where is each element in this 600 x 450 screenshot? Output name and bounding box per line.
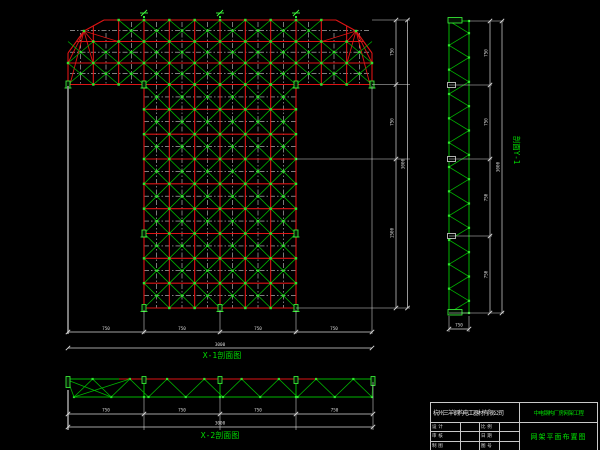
side-height-dim: 750 bbox=[484, 270, 490, 278]
row-label: 图 号 bbox=[480, 442, 500, 450]
bottom-dim: 750 bbox=[178, 408, 186, 414]
plan-right-dim: 750 bbox=[390, 48, 396, 56]
row-label: 制 图 bbox=[431, 442, 461, 450]
plan-caption: X-1剖面图 bbox=[203, 350, 241, 360]
table-row: 设 计 比 例 bbox=[431, 423, 519, 432]
table-row: 制 图 图 号 bbox=[431, 442, 519, 450]
row-label: 比 例 bbox=[480, 423, 500, 431]
side-height-dim: 750 bbox=[484, 118, 490, 126]
plan-right-dim: 1500 bbox=[390, 227, 396, 238]
title-block-table: 设 计 比 例 审 核 日 期 制 图 图 号 bbox=[431, 423, 519, 450]
plan-bottom-dim: 750 bbox=[330, 326, 338, 332]
drawing-title: 网架平面布置图 bbox=[520, 423, 597, 450]
drawing-svg: 7507507507503000750750150030007507507507… bbox=[0, 0, 600, 450]
row-value bbox=[461, 432, 480, 440]
row-label: 审 核 bbox=[431, 432, 461, 440]
row-label: 设 计 bbox=[431, 423, 461, 431]
plan-bottom-dim: 750 bbox=[102, 326, 110, 332]
row-value bbox=[461, 423, 480, 431]
bottom-section-caption: X-2剖面图 bbox=[201, 430, 239, 440]
side-height-total: 3000 bbox=[496, 161, 502, 172]
plan-bottom-total: 3000 bbox=[215, 342, 226, 348]
row-label: 日 期 bbox=[480, 432, 500, 440]
project-name: 中电钢构厂房网架工程 bbox=[520, 403, 597, 423]
plan-bottom-dim: 750 bbox=[254, 326, 262, 332]
title-block-left: 杭州三羊钢构电工器材有限公司 设 计 比 例 审 核 日 期 制 图 bbox=[431, 403, 520, 450]
bottom-section-truss bbox=[66, 377, 375, 399]
cad-viewport: 7507507507503000750750150030007507507507… bbox=[0, 0, 600, 450]
side-section-dimensions: 7507507507503000750剖面Y-1 bbox=[447, 19, 522, 332]
bottom-dim: 750 bbox=[331, 408, 339, 414]
bottom-dim: 750 bbox=[254, 408, 262, 414]
bottom-total: 3000 bbox=[215, 421, 226, 427]
plan-bottom-dim: 750 bbox=[178, 326, 186, 332]
table-row: 审 核 日 期 bbox=[431, 432, 519, 441]
row-value bbox=[500, 442, 519, 450]
row-value bbox=[500, 432, 519, 440]
row-value bbox=[500, 423, 519, 431]
company-name: 杭州三羊钢构电工器材有限公司 bbox=[431, 403, 519, 423]
row-value bbox=[461, 442, 480, 450]
side-section-caption: 剖面Y-1 bbox=[512, 136, 522, 165]
bottom-section-dimensions: 7507507507503000 bbox=[66, 382, 375, 430]
plan-right-dim: 750 bbox=[390, 118, 396, 126]
side-height-dim: 750 bbox=[484, 193, 490, 201]
plan-right-total: 3000 bbox=[401, 158, 407, 169]
title-block: 杭州三羊钢构电工器材有限公司 设 计 比 例 审 核 日 期 制 图 bbox=[430, 402, 598, 450]
bottom-dim: 750 bbox=[102, 408, 110, 414]
side-section-truss bbox=[448, 18, 471, 316]
side-height-dim: 750 bbox=[484, 49, 490, 57]
title-block-right: 中电钢构厂房网架工程 网架平面布置图 bbox=[520, 403, 597, 450]
side-width-dim: 750 bbox=[455, 323, 463, 329]
